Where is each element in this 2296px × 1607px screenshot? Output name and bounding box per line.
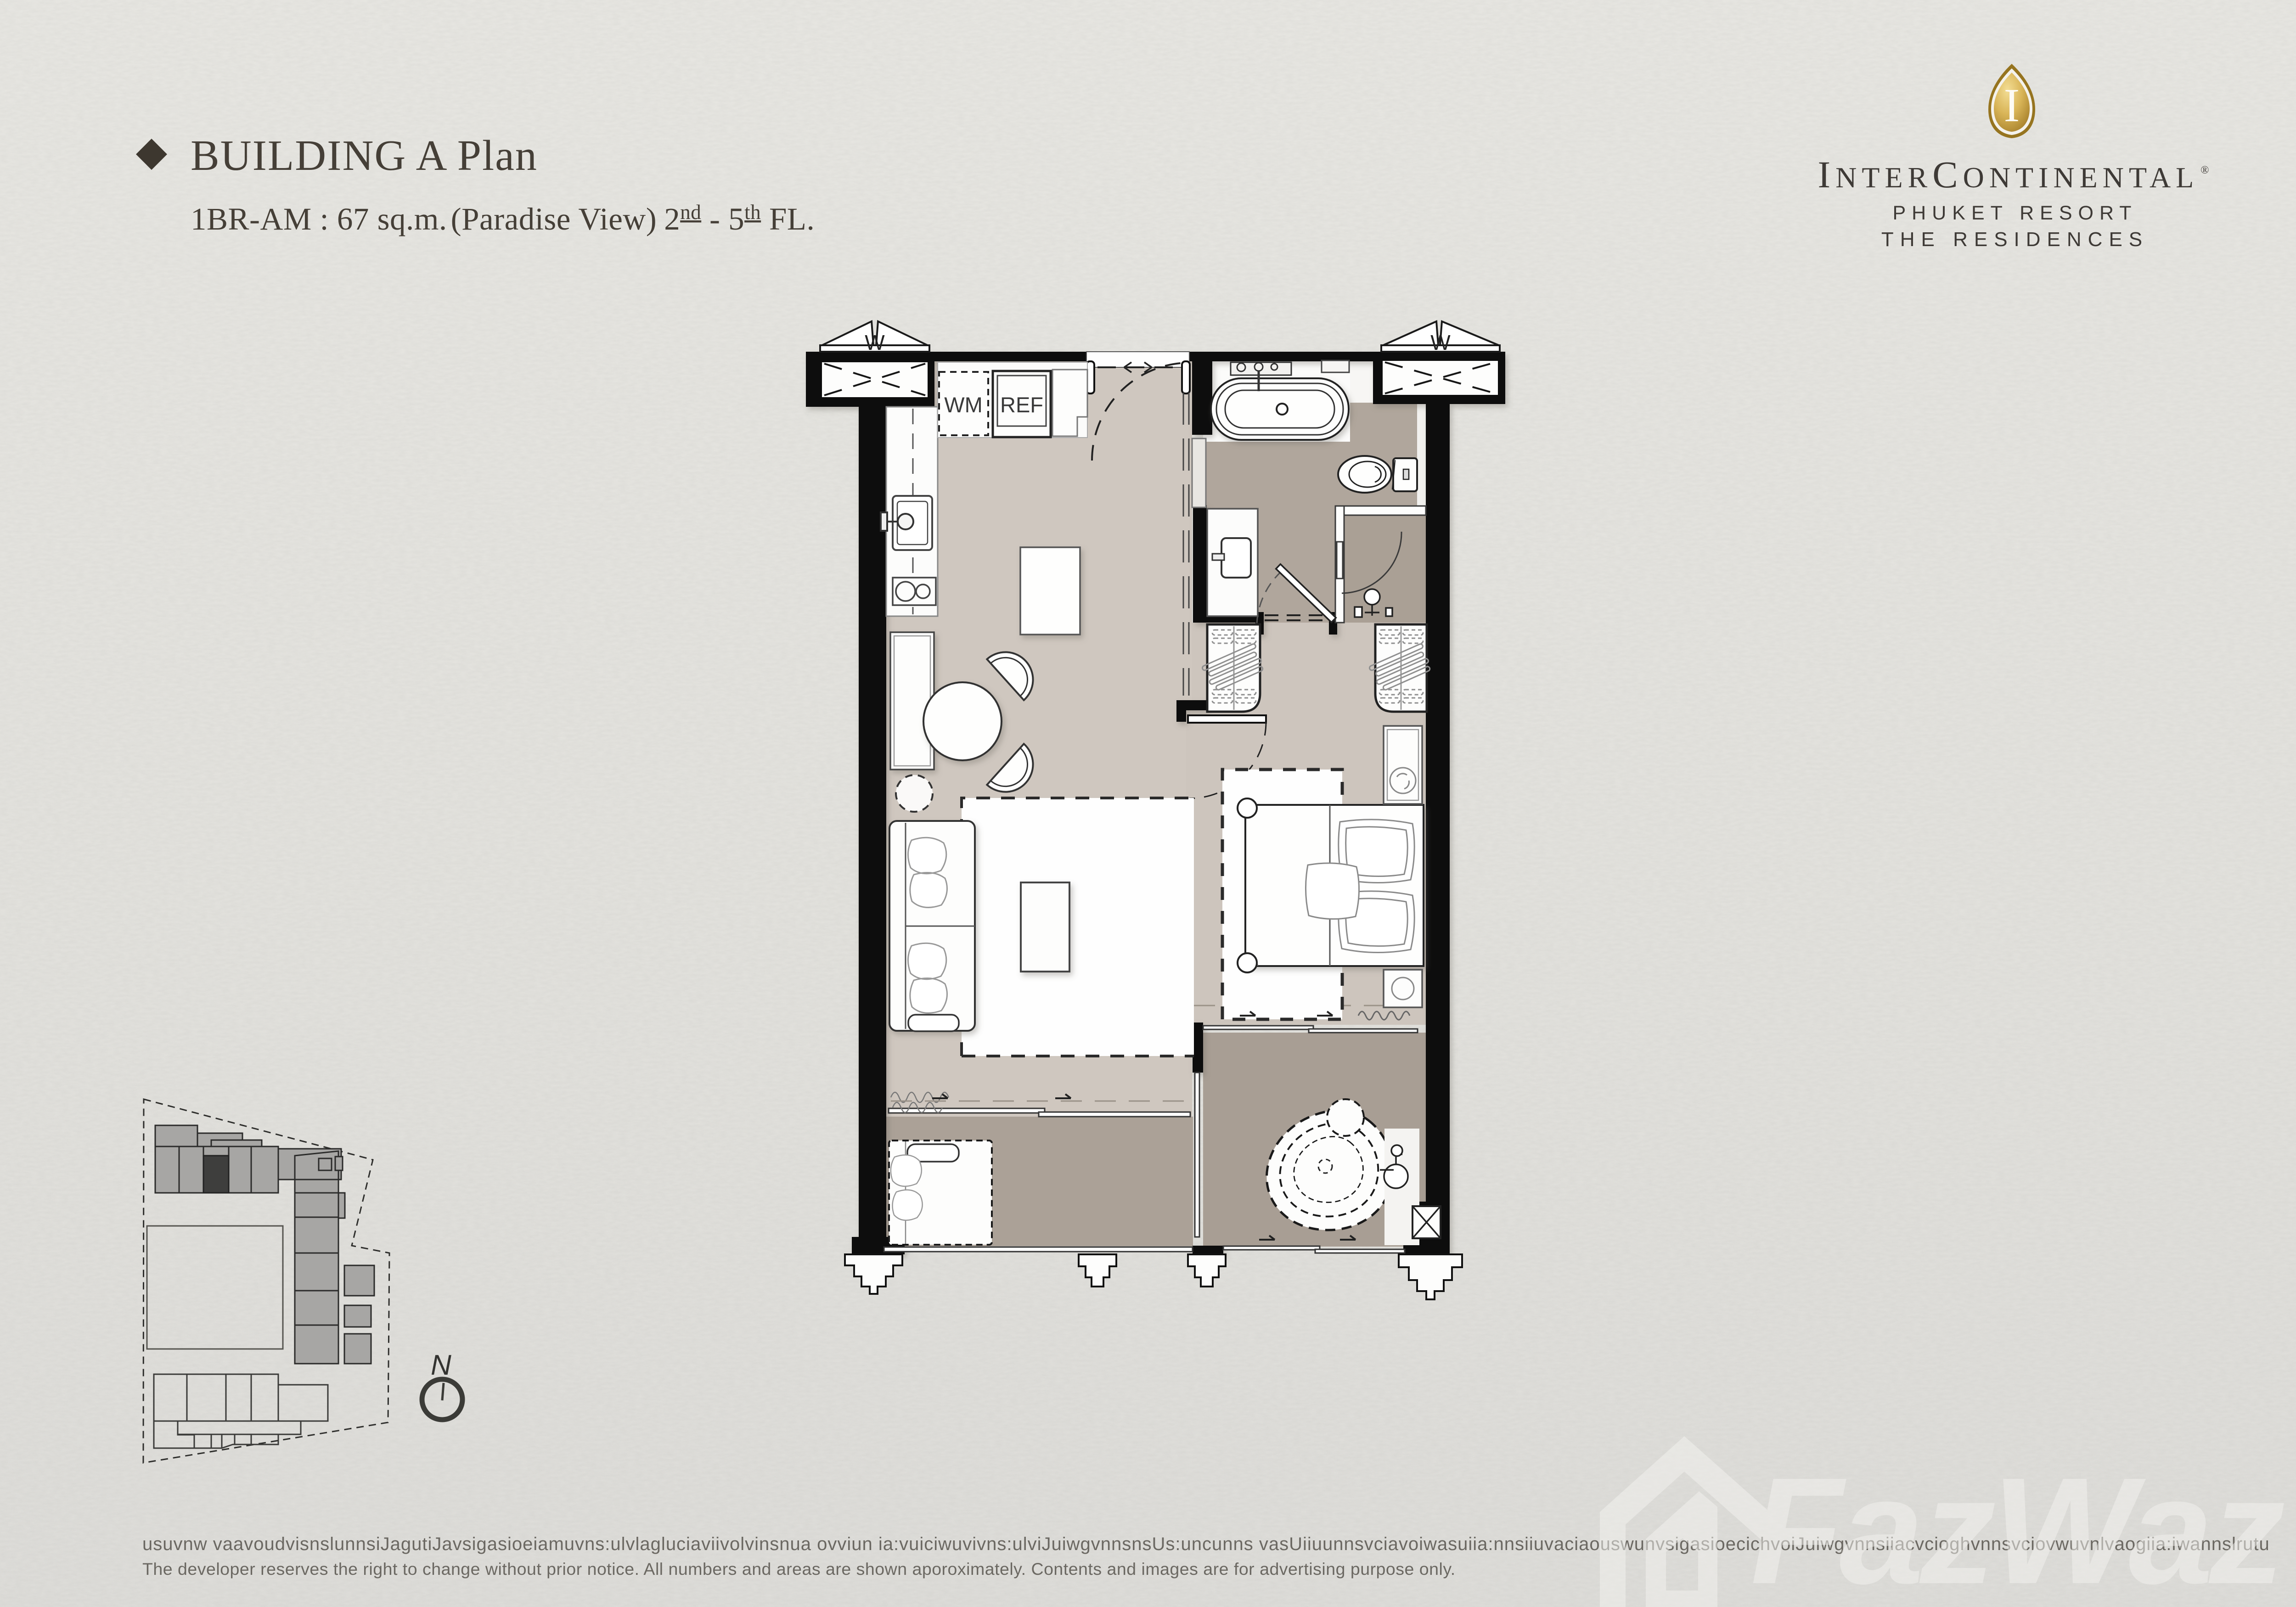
svg-text:N: N (431, 1349, 451, 1381)
svg-text:BUILDING A Plan: BUILDING A Plan (191, 132, 538, 180)
svg-text:The developer reserves the rig: The developer reserves the right to chan… (142, 1559, 1456, 1579)
svg-text:PHUKET RESORT: PHUKET RESORT (1893, 202, 2138, 224)
svg-text:REF: REF (1000, 393, 1043, 417)
svg-text:THE RESIDENCES: THE RESIDENCES (1881, 228, 2149, 251)
svg-text:I: I (2004, 79, 2020, 132)
svg-text:FazWaz: FazWaz (1750, 1446, 2285, 1607)
svg-text:1BR-AM : 67 sq.m.(Paradise Vie: 1BR-AM : 67 sq.m.(Paradise View)2nd - 5t… (191, 201, 815, 236)
svg-text:W: W (1430, 331, 1451, 354)
svg-text:WM: WM (944, 393, 983, 417)
svg-text:W: W (865, 331, 885, 354)
